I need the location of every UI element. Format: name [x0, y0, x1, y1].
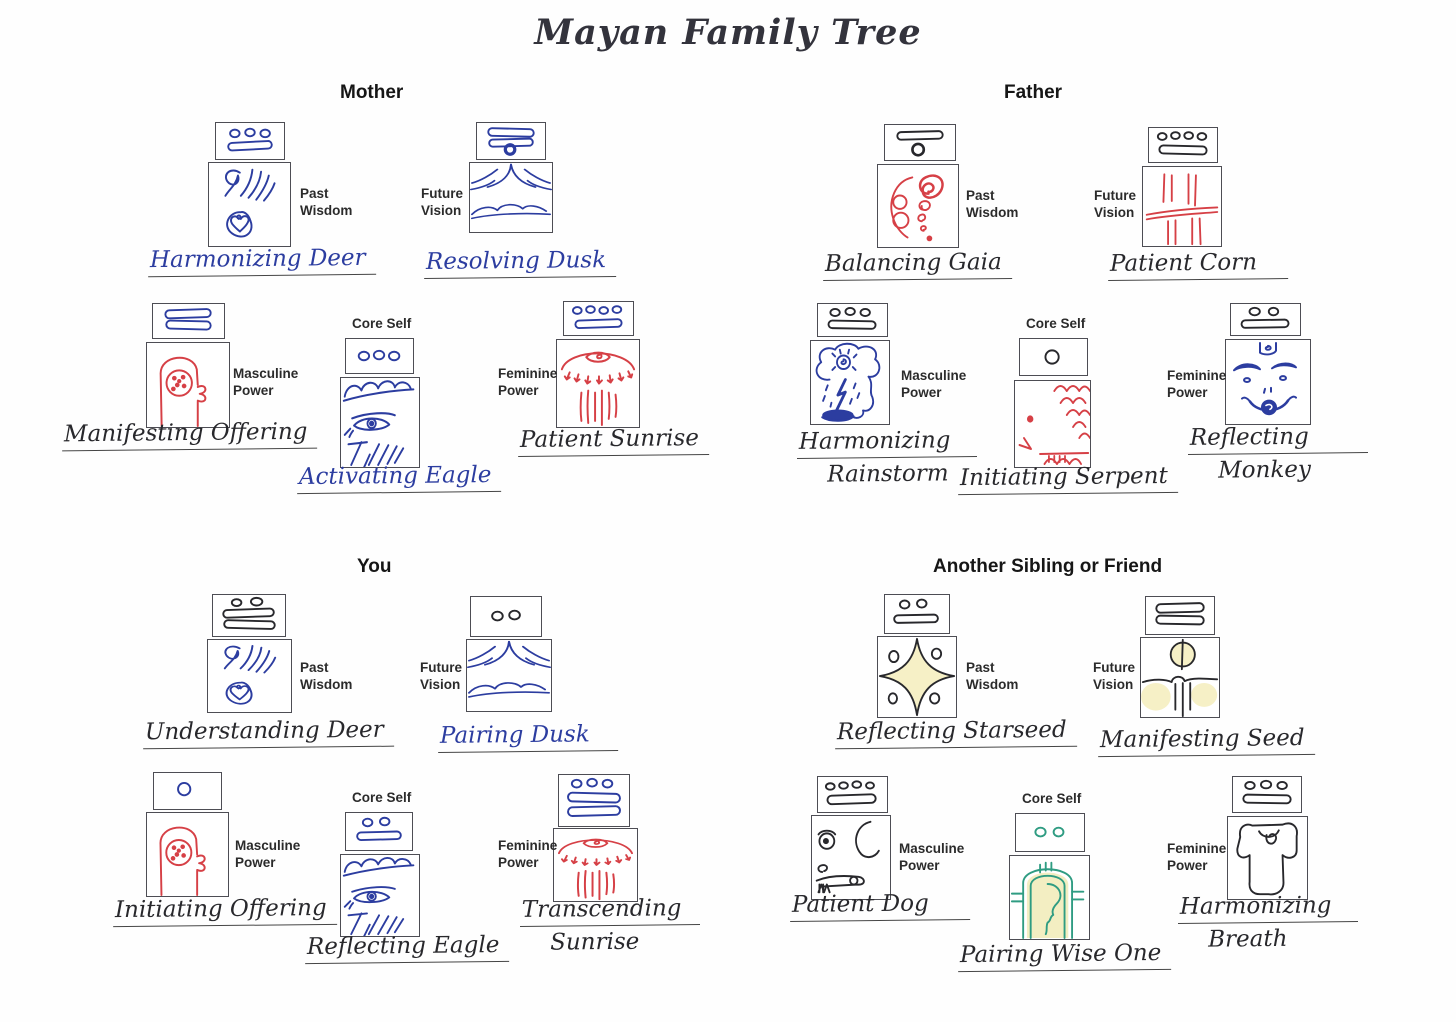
- page-title: Mayan Family Tree: [534, 12, 921, 53]
- seal-name: Initiating Offering: [113, 895, 337, 928]
- number-glyph-plate: [1019, 338, 1088, 376]
- role-label: Past Wisdom: [300, 186, 352, 220]
- number-glyph-plate: [153, 772, 222, 810]
- seal-name-line: Monkey: [1218, 456, 1368, 484]
- seal-name-line: Transcending: [520, 895, 700, 927]
- seal-name-line: Patient Sunrise: [518, 425, 709, 457]
- role-label: Core Self: [1026, 316, 1085, 333]
- number-glyph-plate: [212, 594, 286, 637]
- role-label: Core Self: [352, 790, 411, 807]
- seal-name-line: Reflecting Starseed: [835, 717, 1077, 750]
- number-glyph-plate: [817, 776, 888, 813]
- number-glyph-plate: [1145, 596, 1215, 635]
- role-label: Future Vision: [1093, 660, 1141, 694]
- eagle-drawing: [340, 854, 420, 937]
- seal-name-line: Rainstorm: [827, 460, 977, 488]
- seal-name-line: Patient Corn: [1108, 249, 1288, 281]
- seal-name: Reflecting Starseed: [835, 717, 1077, 750]
- role-label: Future Vision: [1094, 188, 1142, 222]
- seal-name-line: Initiating Serpent: [958, 463, 1178, 496]
- seal-name-line: Activating Eagle: [297, 462, 502, 495]
- role-label: Past Wisdom: [966, 188, 1018, 222]
- seal-name: TranscendingSunrise: [520, 895, 701, 957]
- seal-name-line: Harmonizing: [797, 427, 977, 459]
- sunrise-drawing: [556, 339, 640, 428]
- number-glyph-plate: [884, 594, 950, 634]
- role-label: Masculine Power: [233, 366, 297, 400]
- role-label: Core Self: [1022, 791, 1081, 808]
- corn-drawing: [1142, 166, 1222, 247]
- eagle-drawing: [340, 377, 420, 468]
- seal-name: HarmonizingRainstorm: [797, 427, 978, 489]
- seal-name: Patient Corn: [1108, 249, 1288, 281]
- seed-drawing: [1140, 637, 1220, 718]
- deer-drawing: [208, 162, 291, 247]
- role-label: Masculine Power: [901, 368, 965, 402]
- seal-name: Activating Eagle: [297, 462, 502, 495]
- number-glyph-plate: [1148, 127, 1218, 163]
- monkey-drawing: [1225, 339, 1311, 425]
- breath-drawing: [1227, 816, 1308, 900]
- offering-drawing: [146, 342, 230, 428]
- dusk-drawing: [466, 639, 552, 712]
- serpent-drawing: [1014, 380, 1091, 468]
- seal-name: Balancing Gaia: [823, 249, 1012, 281]
- number-glyph-plate: [476, 122, 546, 160]
- section-header-father: Father: [1004, 82, 1062, 104]
- seal-name-line: Harmonizing Deer: [148, 245, 376, 278]
- sunrise-drawing: [553, 828, 638, 902]
- deer-drawing: [207, 639, 292, 713]
- section-header-you: You: [357, 556, 391, 578]
- seal-name-line: Manifesting Seed: [1098, 725, 1315, 758]
- number-glyph-plate: [1232, 776, 1302, 813]
- seal-name: HarmonizingBreath: [1178, 892, 1359, 954]
- number-glyph-plate: [558, 774, 630, 827]
- role-label: Masculine Power: [235, 838, 299, 872]
- seal-name: Manifesting Seed: [1098, 725, 1315, 758]
- seal-name: Pairing Dusk: [438, 721, 618, 753]
- number-glyph-plate: [1015, 813, 1085, 852]
- role-label: Core Self: [352, 316, 411, 333]
- number-glyph-plate: [563, 301, 634, 336]
- seal-name-line: Initiating Offering: [113, 895, 337, 928]
- seal-name: ReflectingMonkey: [1188, 423, 1369, 485]
- number-glyph-plate: [152, 303, 225, 339]
- seal-name-line: Breath: [1208, 925, 1358, 953]
- seal-name: Manifesting Offering: [62, 419, 318, 452]
- role-label: Feminine Power: [498, 838, 553, 872]
- seal-name-line: Sunrise: [550, 928, 700, 956]
- seal-name-line: Resolving Dusk: [424, 247, 616, 279]
- seal-name: Patient Sunrise: [518, 425, 709, 457]
- dog-drawing: [811, 815, 891, 900]
- seal-name: Understanding Deer: [143, 717, 394, 750]
- seal-name-line: Balancing Gaia: [823, 249, 1012, 281]
- number-glyph-plate: [345, 812, 413, 851]
- wise-one-drawing: [1009, 855, 1090, 940]
- rainstorm-drawing: [810, 340, 890, 425]
- seal-name-line: Pairing Dusk: [438, 721, 618, 753]
- role-label: Feminine Power: [498, 366, 553, 400]
- role-label: Feminine Power: [1167, 368, 1222, 402]
- number-glyph-plate: [345, 338, 414, 374]
- role-label: Past Wisdom: [300, 660, 352, 694]
- role-label: Masculine Power: [899, 841, 963, 875]
- number-glyph-plate: [884, 124, 956, 161]
- seal-name-line: Reflecting: [1188, 423, 1368, 455]
- seal-name: Resolving Dusk: [424, 247, 616, 279]
- seal-name-line: Manifesting Offering: [62, 419, 318, 452]
- seal-name: Patient Dog: [790, 890, 970, 922]
- gaia-spirals-drawing: [877, 164, 959, 248]
- seal-name-line: Patient Dog: [790, 890, 970, 922]
- scanned-worksheet-page: Mayan Family Tree Mother Father You Anot…: [0, 0, 1456, 1022]
- seal-name: Reflecting Eagle: [305, 932, 510, 965]
- number-glyph-plate: [817, 303, 888, 337]
- role-label: Past Wisdom: [966, 660, 1018, 694]
- seal-name-line: Pairing Wise One: [958, 940, 1172, 973]
- seal-name-line: Reflecting Eagle: [305, 932, 510, 965]
- section-header-mother: Mother: [340, 82, 403, 104]
- role-label: Future Vision: [421, 186, 469, 220]
- seal-name: Pairing Wise One: [958, 940, 1172, 973]
- offering-drawing: [146, 812, 229, 897]
- seal-name-line: Understanding Deer: [143, 717, 394, 750]
- seal-name: Harmonizing Deer: [148, 245, 376, 278]
- number-glyph-plate: [215, 122, 285, 160]
- seal-name-line: Harmonizing: [1178, 892, 1358, 924]
- role-label: Future Vision: [420, 660, 468, 694]
- seal-name: Initiating Serpent: [958, 463, 1178, 496]
- role-label: Feminine Power: [1167, 841, 1222, 875]
- section-header-sibling: Another Sibling or Friend: [933, 556, 1162, 578]
- number-glyph-plate: [1230, 303, 1301, 336]
- starseed-drawing: [877, 636, 957, 718]
- dusk-drawing: [469, 162, 553, 233]
- number-glyph-plate: [470, 596, 542, 637]
